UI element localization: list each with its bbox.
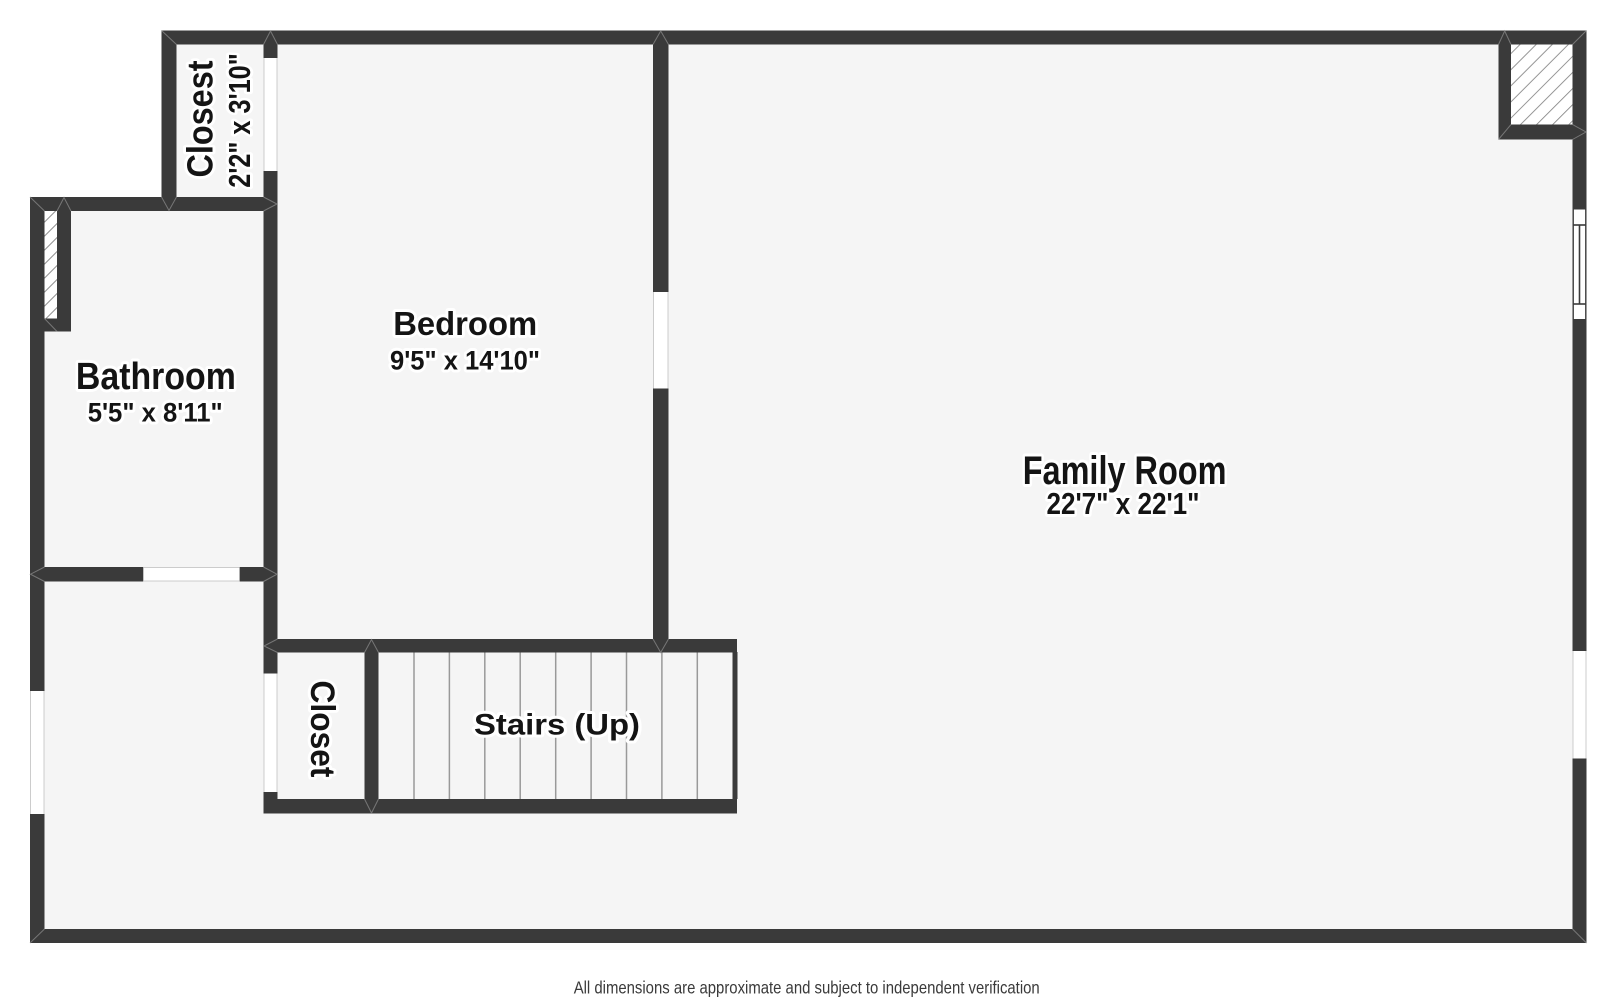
svg-text:Bedroom: Bedroom (393, 306, 537, 343)
svg-text:Bathroom: Bathroom (76, 356, 236, 398)
svg-text:All dimensions are approximate: All dimensions are approximate and subje… (574, 978, 1040, 998)
svg-text:9'5" x 14'10": 9'5" x 14'10" (390, 346, 540, 376)
svg-text:5'5" x 8'11": 5'5" x 8'11" (88, 398, 223, 428)
svg-text:2'2" x 3'10": 2'2" x 3'10" (222, 53, 257, 188)
svg-text:22'7" x 22'1": 22'7" x 22'1" (1047, 487, 1200, 521)
svg-text:Closest: Closest (180, 60, 221, 177)
svg-text:Closet: Closet (303, 681, 341, 778)
svg-text:Stairs (Up): Stairs (Up) (474, 709, 640, 742)
